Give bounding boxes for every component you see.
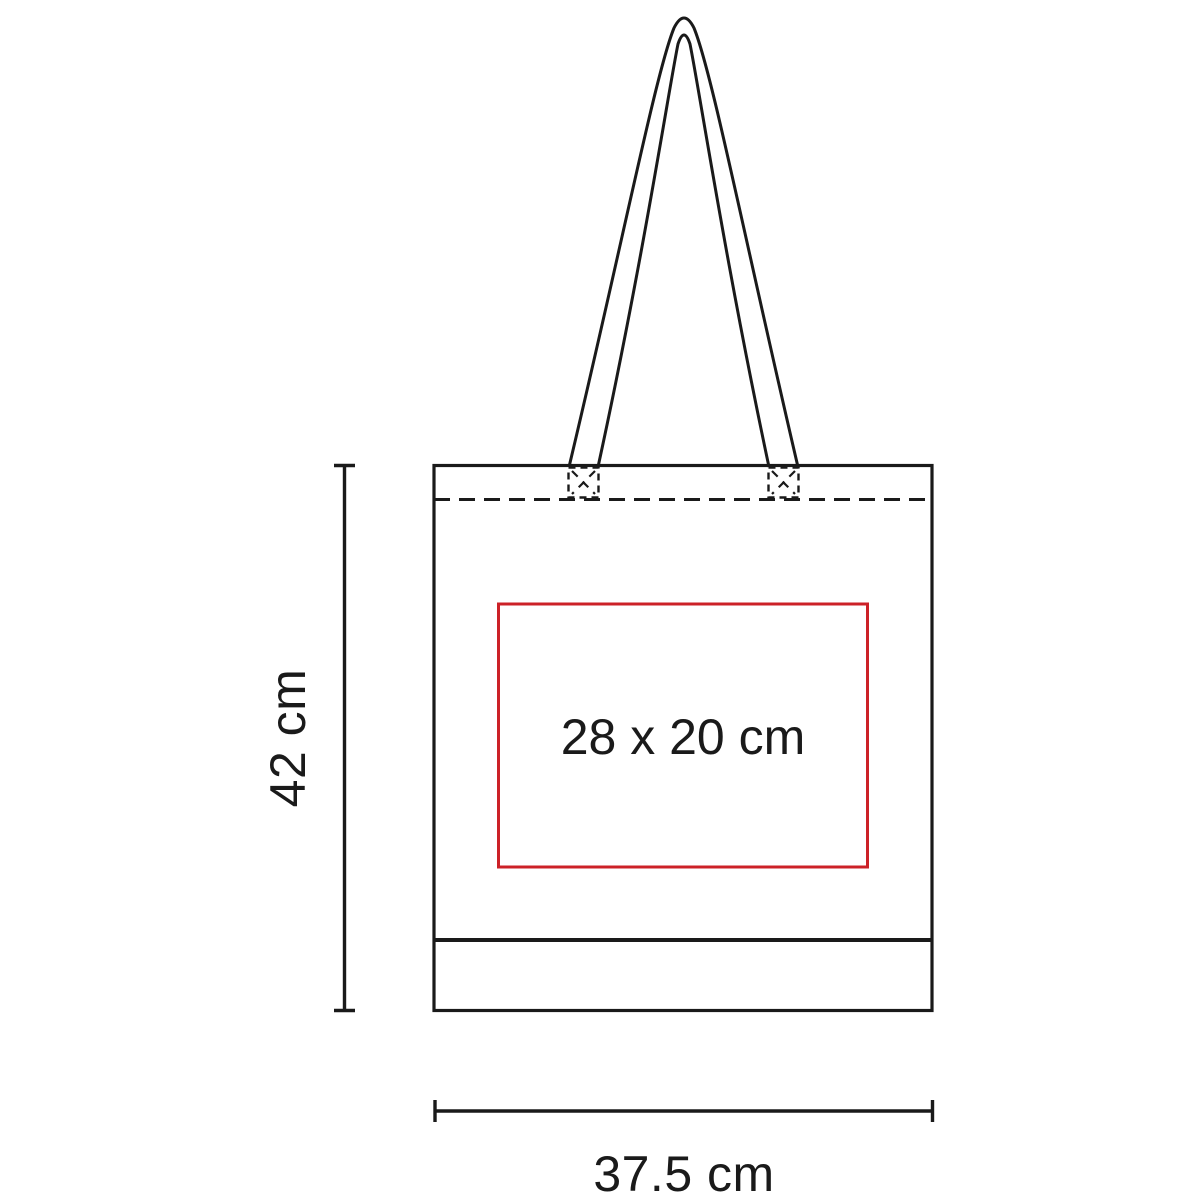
handle-stitch-box-left xyxy=(569,468,599,498)
width-dimension xyxy=(435,1100,933,1122)
height-dimension xyxy=(334,466,355,1011)
handle-outer-outline xyxy=(569,18,798,467)
handle-stitch-box-right xyxy=(769,468,799,498)
diagram-canvas: 28 x 20 cm 42 cm 37.5 cm xyxy=(0,0,1200,1200)
handle-inner-outline xyxy=(598,35,769,467)
width-dimension-label: 37.5 cm xyxy=(593,1146,774,1200)
height-dimension-label: 42 cm xyxy=(260,669,316,808)
print-area-label: 28 x 20 cm xyxy=(561,709,806,765)
line-art-group xyxy=(334,18,933,1122)
bag-handles xyxy=(569,18,798,467)
tote-bag-dimension-diagram: 28 x 20 cm 42 cm 37.5 cm xyxy=(0,0,1200,1200)
